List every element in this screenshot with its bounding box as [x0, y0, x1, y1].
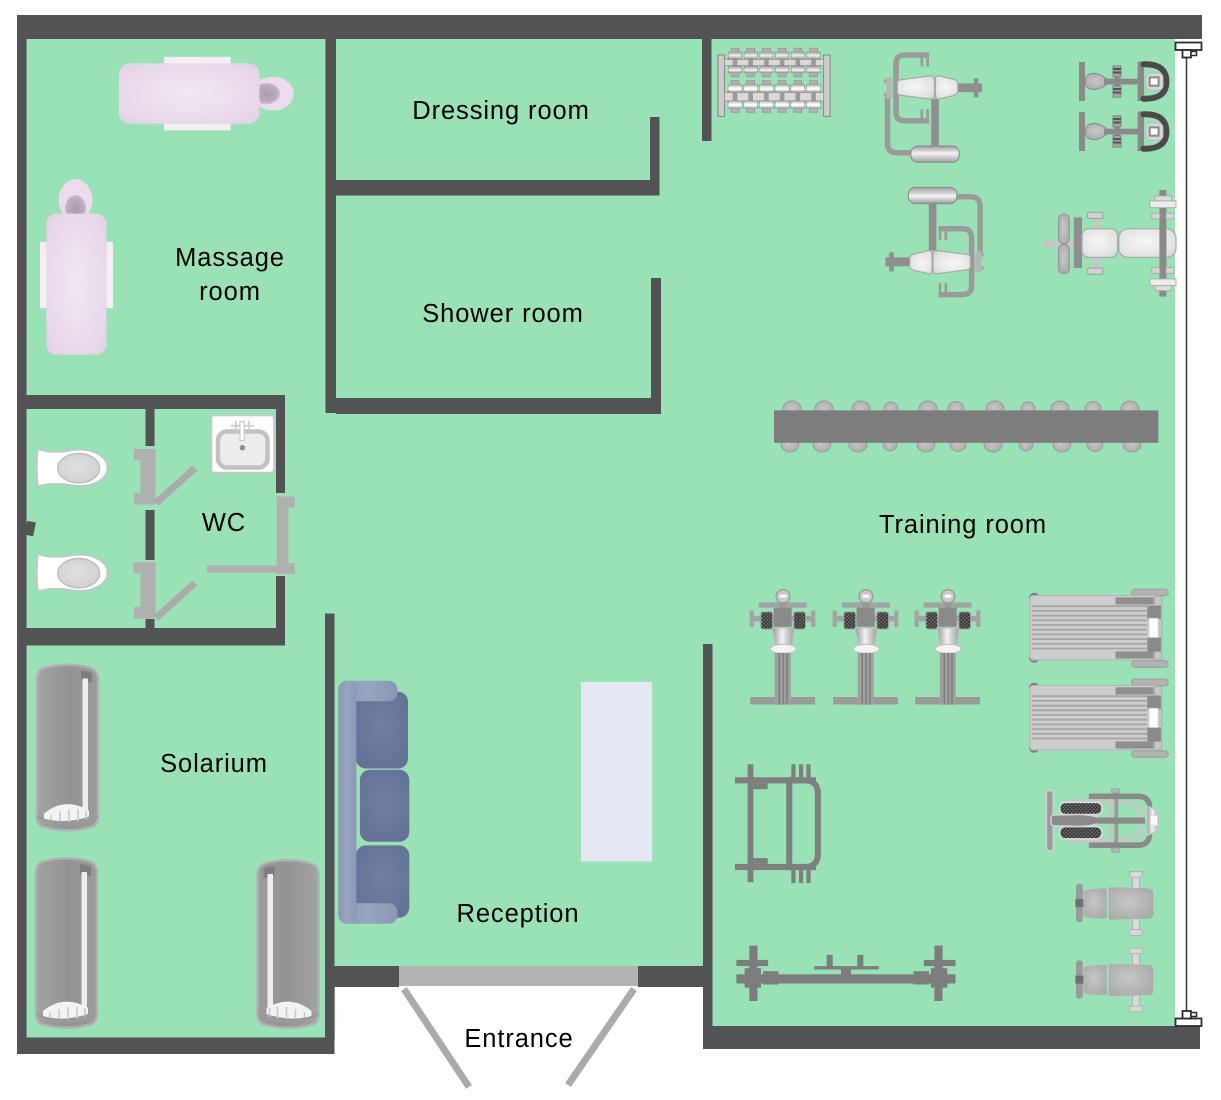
- svg-text:room: room: [199, 278, 261, 306]
- svg-text:Massage: Massage: [175, 244, 285, 272]
- svg-text:Reception: Reception: [457, 900, 580, 928]
- svg-text:Entrance: Entrance: [464, 1025, 573, 1053]
- svg-text:Solarium: Solarium: [160, 750, 268, 778]
- svg-text:Training room: Training room: [879, 511, 1047, 539]
- svg-text:Shower room: Shower room: [422, 300, 584, 328]
- svg-text:WC: WC: [202, 509, 246, 537]
- svg-text:Dressing room: Dressing room: [412, 97, 590, 125]
